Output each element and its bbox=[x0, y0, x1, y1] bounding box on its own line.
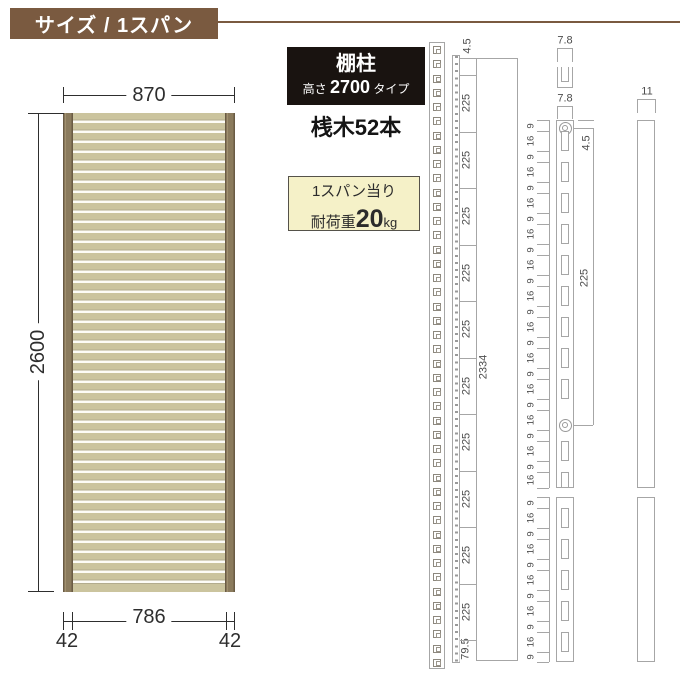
dim-tick bbox=[460, 58, 477, 59]
slot-square bbox=[433, 260, 441, 268]
slot-square bbox=[433, 616, 441, 624]
pitch-tick bbox=[537, 306, 549, 307]
dim-tick bbox=[460, 471, 477, 472]
pitch-label: 9 bbox=[526, 154, 536, 159]
detail-slot bbox=[561, 255, 569, 275]
pitch-label: 9 bbox=[526, 371, 536, 376]
dim-pitch-225: 225 bbox=[461, 431, 474, 453]
pitch-label: 9 bbox=[526, 562, 536, 567]
column-front-view bbox=[429, 42, 445, 669]
slot-square bbox=[433, 288, 441, 296]
slot-square-inner bbox=[436, 519, 441, 524]
slot-square-inner bbox=[436, 234, 441, 239]
pitch-label: 16 bbox=[526, 446, 536, 457]
pitch-label: 9 bbox=[526, 185, 536, 190]
slot-square-inner bbox=[436, 305, 441, 310]
pitch-label: 9 bbox=[526, 433, 536, 438]
pitch-label: 9 bbox=[526, 531, 536, 536]
dim-connector bbox=[476, 58, 518, 59]
pitch-tick bbox=[537, 539, 549, 540]
pitch-tick bbox=[537, 570, 549, 571]
dim-total-line bbox=[517, 58, 518, 660]
slot-square bbox=[433, 203, 441, 211]
pitch-tick bbox=[537, 193, 549, 194]
slot-square bbox=[433, 573, 441, 581]
dim-tick bbox=[63, 612, 64, 630]
dim-tick bbox=[460, 301, 477, 302]
dim-bracket bbox=[572, 48, 573, 62]
slot-square bbox=[433, 402, 441, 410]
slot-square-inner bbox=[436, 505, 441, 510]
slot-square bbox=[433, 388, 441, 396]
slot-square bbox=[433, 417, 441, 425]
slot-square bbox=[433, 488, 441, 496]
slot-square bbox=[433, 75, 441, 83]
slot-square bbox=[433, 60, 441, 68]
section-header-bar: サイズ / 1スパン bbox=[10, 8, 218, 39]
slot-square bbox=[433, 217, 441, 225]
slot-square-inner bbox=[436, 433, 441, 438]
slot-square bbox=[433, 103, 441, 111]
pitch-label: 16 bbox=[526, 291, 536, 302]
slot-square bbox=[433, 645, 441, 653]
slot-square-inner bbox=[436, 633, 441, 638]
slot-square bbox=[433, 630, 441, 638]
pitch-label: 9 bbox=[526, 624, 536, 629]
slot-square bbox=[433, 117, 441, 125]
slot-square-inner bbox=[436, 476, 441, 481]
slot-square bbox=[433, 89, 441, 97]
slot-square-inner bbox=[436, 647, 441, 652]
pitch-label: 9 bbox=[526, 278, 536, 283]
dim-bracket bbox=[557, 48, 573, 49]
pitch-label: 16 bbox=[526, 198, 536, 209]
dim-tick bbox=[234, 87, 235, 103]
pitch-label: 9 bbox=[526, 216, 536, 221]
slot-square-inner bbox=[436, 661, 441, 666]
slot-square bbox=[433, 545, 441, 553]
slot-square bbox=[433, 246, 441, 254]
slot-square-inner bbox=[436, 191, 441, 196]
pitch-label: 16 bbox=[526, 353, 536, 364]
pitch-tick bbox=[537, 528, 549, 529]
dim-post-width-left: 42 bbox=[50, 631, 84, 651]
crosspieces-count-label: 桟木52本 bbox=[287, 110, 425, 142]
slot-square-inner bbox=[436, 376, 441, 381]
slot-square-inner bbox=[436, 547, 441, 552]
pitch-tick bbox=[537, 601, 549, 602]
pitch-tick bbox=[537, 131, 549, 132]
slot-square-inner bbox=[436, 604, 441, 609]
slot-square bbox=[433, 431, 441, 439]
dim-tick bbox=[460, 358, 477, 359]
slot-square-inner bbox=[436, 533, 441, 538]
slot-square-inner bbox=[436, 262, 441, 267]
slot-square bbox=[433, 474, 441, 482]
dim-tick bbox=[460, 132, 477, 133]
dim-pitch-225: 225 bbox=[461, 601, 474, 623]
pitch-label: 16 bbox=[526, 322, 536, 333]
slot-square bbox=[433, 317, 441, 325]
dim-connector bbox=[574, 425, 593, 426]
slot-square-inner bbox=[436, 334, 441, 339]
pitch-tick bbox=[537, 275, 549, 276]
slot-square-inner bbox=[436, 248, 441, 253]
slot-square bbox=[433, 374, 441, 382]
pitch-tick bbox=[537, 508, 549, 509]
lattice-panel bbox=[63, 113, 235, 592]
pitch-label: 16 bbox=[526, 167, 536, 178]
dim-tick bbox=[226, 612, 227, 630]
slot-square bbox=[433, 559, 441, 567]
pitch-tick bbox=[537, 488, 549, 489]
slot-square-inner bbox=[436, 576, 441, 581]
pitch-tick bbox=[537, 410, 549, 411]
pitch-tick bbox=[537, 441, 549, 442]
slot-square-inner bbox=[436, 590, 441, 595]
spec-diagram: サイズ / 1スパン 870 2600 786 42 42 棚柱 高さ 2700… bbox=[0, 0, 680, 680]
pitch-tick bbox=[537, 632, 549, 633]
slot-square bbox=[433, 602, 441, 610]
dim-bracket bbox=[572, 106, 573, 119]
dim-section-width: 7.8 bbox=[557, 36, 572, 47]
slot-square-inner bbox=[436, 391, 441, 396]
dim-pitch-225: 225 bbox=[461, 318, 474, 340]
dim-tick bbox=[460, 584, 477, 585]
dim-tick bbox=[460, 75, 477, 76]
pitch-label: 16 bbox=[526, 136, 536, 147]
dim-tick bbox=[63, 87, 64, 103]
pitch-tick bbox=[537, 559, 549, 560]
dim-pitch-225: 225 bbox=[461, 544, 474, 566]
slot-square bbox=[433, 360, 441, 368]
slot-square bbox=[433, 132, 441, 140]
slot-square bbox=[433, 459, 441, 467]
detail-side-view-upper bbox=[637, 120, 655, 488]
slot-square-inner bbox=[436, 562, 441, 567]
column-section-inner-wall bbox=[561, 67, 569, 82]
pitch-tick bbox=[537, 472, 549, 473]
pitch-tick bbox=[537, 621, 549, 622]
slot-square bbox=[433, 160, 441, 168]
dim-tick bbox=[72, 612, 73, 630]
dim-front-width: 7.8 bbox=[557, 94, 572, 105]
pitch-tick bbox=[537, 255, 549, 256]
panel-right-post bbox=[225, 113, 235, 592]
pitch-label: 16 bbox=[526, 475, 536, 486]
pitch-tick bbox=[537, 286, 549, 287]
detail-slot bbox=[561, 379, 569, 399]
detail-slot bbox=[561, 632, 569, 652]
dim-bracket bbox=[557, 106, 573, 107]
pitch-label: 16 bbox=[526, 637, 536, 648]
pitch-tick bbox=[537, 244, 549, 245]
pitch-tick bbox=[537, 652, 549, 653]
pitch-tick bbox=[537, 497, 549, 498]
slot-square bbox=[433, 588, 441, 596]
load-line2: 耐荷重20kg bbox=[289, 202, 419, 237]
column-spec-box: 棚柱 高さ 2700 タイプ bbox=[287, 47, 425, 105]
slot-square bbox=[433, 516, 441, 524]
dim-tick bbox=[460, 640, 477, 641]
pitch-chain-line bbox=[549, 497, 550, 662]
slot-square-inner bbox=[436, 49, 441, 54]
pitch-tick bbox=[537, 368, 549, 369]
slot-square bbox=[433, 445, 441, 453]
dim-tick bbox=[460, 188, 477, 189]
slot-square-inner bbox=[436, 220, 441, 225]
slot-square-inner bbox=[436, 490, 441, 495]
dim-pitch-225: 225 bbox=[461, 488, 474, 510]
slot-square-inner bbox=[436, 106, 441, 111]
pitch-tick bbox=[537, 162, 549, 163]
side-view-slot-marks bbox=[455, 56, 458, 662]
pitch-tick bbox=[537, 213, 549, 214]
detail-slot bbox=[561, 348, 569, 368]
detail-slot bbox=[561, 162, 569, 182]
pitch-label: 9 bbox=[526, 247, 536, 252]
pitch-tick bbox=[537, 317, 549, 318]
pitch-label: 16 bbox=[526, 606, 536, 617]
pitch-label: 9 bbox=[526, 464, 536, 469]
dim-post-width-right: 42 bbox=[213, 631, 247, 651]
slot-square-inner bbox=[436, 134, 441, 139]
dim-pitch-225: 225 bbox=[461, 205, 474, 227]
header-rule-line bbox=[218, 21, 680, 23]
detail-slot bbox=[561, 570, 569, 590]
section-title: サイズ / 1スパン bbox=[35, 9, 193, 38]
slot-square-inner bbox=[436, 277, 441, 282]
pitch-label: 16 bbox=[526, 575, 536, 586]
slot-square-inner bbox=[436, 120, 441, 125]
slot-square bbox=[433, 174, 441, 182]
slot-square-inner bbox=[436, 205, 441, 210]
panel-bottom-rail bbox=[73, 583, 225, 592]
slot-square-inner bbox=[436, 63, 441, 68]
detail-slot bbox=[561, 441, 569, 461]
dim-bracket bbox=[557, 106, 558, 119]
slot-square-inner bbox=[436, 77, 441, 82]
slot-square bbox=[433, 502, 441, 510]
pitch-label: 16 bbox=[526, 415, 536, 426]
slot-square bbox=[433, 531, 441, 539]
column-side-view bbox=[452, 55, 460, 663]
slot-square-inner bbox=[436, 462, 441, 467]
panel-left-post bbox=[63, 113, 73, 592]
dim-pitch-225: 225 bbox=[461, 149, 474, 171]
detail-slot bbox=[561, 193, 569, 213]
dim-hole-pitch-line bbox=[593, 128, 594, 425]
detail-slot bbox=[561, 539, 569, 559]
dim-bracket bbox=[637, 99, 638, 113]
pitch-tick bbox=[537, 151, 549, 152]
pitch-tick bbox=[537, 379, 549, 380]
dim-pitch-225: 225 bbox=[461, 92, 474, 114]
slot-square-inner bbox=[436, 163, 441, 168]
detail-slot bbox=[561, 286, 569, 306]
dim-tick bbox=[234, 612, 235, 630]
pitch-label: 9 bbox=[526, 654, 536, 659]
pitch-tick bbox=[537, 337, 549, 338]
dim-bottom-inner-width: 786 bbox=[126, 607, 171, 627]
dim-pitch-225: 225 bbox=[461, 375, 474, 397]
dim-hole-pitch: 225 bbox=[579, 267, 592, 289]
dim-tick bbox=[578, 120, 594, 121]
dim-bracket bbox=[637, 99, 656, 100]
subtitle-suffix: タイプ bbox=[370, 82, 409, 96]
pitch-tick bbox=[537, 662, 549, 663]
dim-top-width: 870 bbox=[126, 85, 171, 105]
slot-square bbox=[433, 231, 441, 239]
dim-total-length: 2334 bbox=[478, 353, 491, 381]
load-line1: 1スパン当り bbox=[289, 182, 419, 202]
dim-connector bbox=[574, 128, 593, 129]
slot-square-inner bbox=[436, 419, 441, 424]
pitch-tick bbox=[537, 399, 549, 400]
slot-square-inner bbox=[436, 91, 441, 96]
pitch-label: 16 bbox=[526, 513, 536, 524]
detail-slot bbox=[561, 317, 569, 337]
dim-tick bbox=[28, 591, 54, 592]
subtitle-value: 2700 bbox=[330, 77, 370, 97]
dim-connector bbox=[476, 660, 518, 661]
detail-side-view-lower bbox=[637, 497, 655, 662]
pitch-label: 16 bbox=[526, 260, 536, 271]
subtitle-prefix: 高さ bbox=[303, 82, 330, 96]
pitch-tick bbox=[537, 348, 549, 349]
slot-square-inner bbox=[436, 348, 441, 353]
pitch-label: 9 bbox=[526, 402, 536, 407]
dim-bracket bbox=[557, 48, 558, 62]
pitch-tick bbox=[537, 224, 549, 225]
slot-square-inner bbox=[436, 619, 441, 624]
detail-slot bbox=[561, 601, 569, 621]
load-unit: kg bbox=[384, 215, 398, 230]
pitch-tick bbox=[537, 120, 549, 121]
pitch-label: 16 bbox=[526, 544, 536, 555]
slot-square bbox=[433, 146, 441, 154]
detail-slot bbox=[561, 224, 569, 244]
pitch-label: 16 bbox=[526, 229, 536, 240]
column-spec-subtitle: 高さ 2700 タイプ bbox=[287, 76, 425, 99]
pitch-label: 9 bbox=[526, 123, 536, 128]
dim-bracket bbox=[655, 99, 656, 113]
slot-square bbox=[433, 189, 441, 197]
slot-square-inner bbox=[436, 405, 441, 410]
slot-square bbox=[433, 659, 441, 667]
load-capacity-box: 1スパン当り 耐荷重20kg bbox=[288, 176, 420, 231]
pitch-tick bbox=[537, 590, 549, 591]
pitch-label: 16 bbox=[526, 384, 536, 395]
slot-square bbox=[433, 303, 441, 311]
pitch-label: 9 bbox=[526, 340, 536, 345]
detail-slot bbox=[561, 472, 569, 488]
pitch-tick bbox=[537, 461, 549, 462]
pitch-label: 9 bbox=[526, 593, 536, 598]
slot-square-inner bbox=[436, 448, 441, 453]
slot-square bbox=[433, 331, 441, 339]
slot-square-inner bbox=[436, 319, 441, 324]
dim-tick bbox=[460, 245, 477, 246]
slot-square-inner bbox=[436, 177, 441, 182]
dim-side-width: 11 bbox=[641, 87, 652, 98]
detail-slot bbox=[561, 131, 569, 151]
slot-square bbox=[433, 274, 441, 282]
load-value: 20 bbox=[356, 205, 384, 233]
column-spec-title: 棚柱 bbox=[287, 52, 425, 76]
detail-slot bbox=[561, 508, 569, 528]
slot-square-inner bbox=[436, 291, 441, 296]
slot-square-inner bbox=[436, 148, 441, 153]
pitch-chain-line bbox=[549, 120, 550, 488]
dim-hole-offset: 4.5 bbox=[581, 133, 594, 152]
dim-top-offset: 4.5 bbox=[462, 36, 475, 55]
pitch-label: 9 bbox=[526, 500, 536, 505]
dim-left-height: 2600 bbox=[26, 324, 50, 381]
pitch-tick bbox=[537, 182, 549, 183]
slot-square bbox=[433, 345, 441, 353]
mounting-hole-lower-inner bbox=[562, 422, 568, 428]
slot-square bbox=[433, 46, 441, 54]
dim-tick bbox=[28, 113, 64, 114]
pitch-label: 9 bbox=[526, 309, 536, 314]
column-section-profile bbox=[557, 67, 573, 88]
pitch-tick bbox=[537, 430, 549, 431]
dim-tick bbox=[460, 527, 477, 528]
dim-tick bbox=[460, 414, 477, 415]
load-prefix: 耐荷重 bbox=[311, 214, 356, 231]
dim-pitch-225: 225 bbox=[461, 262, 474, 284]
slot-square-inner bbox=[436, 362, 441, 367]
